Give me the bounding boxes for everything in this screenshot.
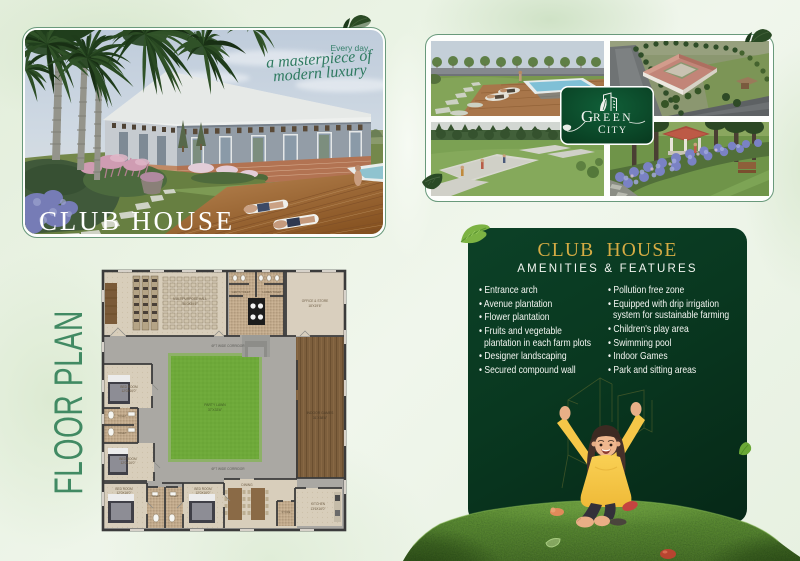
- svg-text:MULTIPURPOSE HALL: MULTIPURPOSE HALL: [173, 297, 207, 301]
- svg-text:37'X33'6": 37'X33'6": [208, 408, 223, 412]
- svg-text:DINING: DINING: [241, 483, 253, 487]
- svg-text:TOILET: TOILET: [117, 414, 126, 418]
- svg-text:TOILET: TOILET: [169, 494, 178, 498]
- svg-text:GENTS TOILET: GENTS TOILET: [232, 290, 251, 294]
- svg-text:OFFICE & STORE: OFFICE & STORE: [302, 299, 329, 303]
- svg-text:6FT WIDE CORRIDOR: 6FT WIDE CORRIDOR: [211, 344, 245, 348]
- svg-text:TOILET: TOILET: [117, 431, 126, 435]
- svg-text:12'0X16'0": 12'0X16'0": [195, 491, 210, 495]
- svg-text:12'0X16'0": 12'0X16'0": [121, 389, 136, 393]
- svg-text:REEN: REEN: [593, 112, 633, 124]
- svg-text:ITY: ITY: [607, 126, 627, 136]
- svg-text:12'0X16'0": 12'0X16'0": [116, 491, 131, 495]
- svg-text:KITCHEN: KITCHEN: [311, 502, 326, 506]
- svg-text:PARTY LAWN: PARTY LAWN: [204, 403, 226, 407]
- svg-text:INDOOR GAMES: INDOOR GAMES: [307, 411, 334, 415]
- svg-text:18'X19'6": 18'X19'6": [308, 304, 321, 308]
- svg-text:G: G: [581, 107, 593, 126]
- svg-text:12'0X16'0": 12'0X16'0": [120, 461, 135, 465]
- svg-text:6FT WIDE CORRIDOR: 6FT WIDE CORRIDOR: [211, 467, 245, 471]
- svg-text:LADIES TOILET: LADIES TOILET: [263, 290, 282, 294]
- svg-text:13'6X16'0": 13'6X16'0": [310, 507, 325, 511]
- svg-text:50'0X39'6": 50'0X39'6": [182, 302, 197, 306]
- svg-text:TOILET: TOILET: [151, 494, 160, 498]
- svg-text:31'X58'6": 31'X58'6": [313, 416, 328, 420]
- svg-text:STORE: STORE: [282, 510, 291, 514]
